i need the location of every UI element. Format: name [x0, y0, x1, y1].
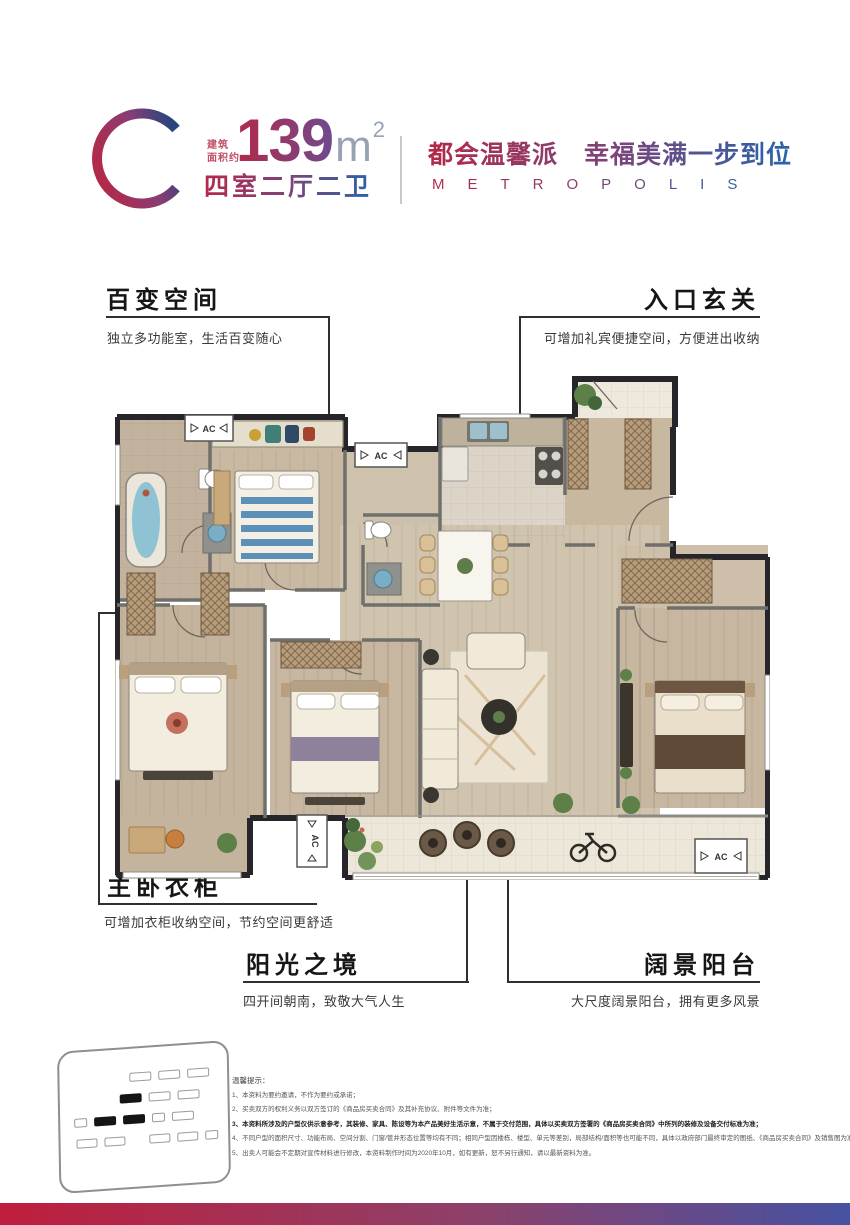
- site-plan-row: [120, 1088, 218, 1104]
- sink-1: [208, 524, 226, 542]
- window: [115, 445, 120, 505]
- nightstand: [119, 665, 128, 679]
- ac-label: AC: [715, 852, 728, 862]
- site-building: [158, 1069, 180, 1080]
- pillow: [279, 475, 313, 489]
- dining-chair: [420, 557, 435, 573]
- closet-item: [285, 425, 299, 443]
- area-value: 139: [236, 106, 333, 175]
- burner: [539, 470, 548, 479]
- pillow: [239, 475, 273, 489]
- master-wardrobe: [201, 573, 229, 635]
- headboard: [129, 663, 227, 675]
- callout-title-foyer: 入口玄关: [520, 280, 760, 315]
- dining-chair: [493, 535, 508, 551]
- pillow: [705, 695, 743, 710]
- nightstand: [645, 683, 654, 697]
- entry-door-opening: [669, 495, 677, 541]
- duvet-flower-center: [173, 719, 181, 727]
- ac-unit-3: AC: [297, 815, 327, 867]
- side-table: [423, 649, 439, 665]
- ac-unit-1: AC: [185, 415, 233, 441]
- ac-label: AC: [310, 835, 320, 848]
- callout-line: [519, 316, 760, 318]
- header-divider: [400, 136, 402, 204]
- burner: [539, 452, 548, 461]
- disclaimer: 温馨提示： 1、本资料为要约邀请，不作为要约或承诺； 2、买卖双方的权利义务以双…: [232, 1074, 832, 1162]
- sink-2: [374, 570, 392, 588]
- callout-line: [243, 981, 469, 983]
- master-wardrobe: [127, 573, 155, 635]
- site-building: [76, 1138, 97, 1148]
- site-building: [149, 1133, 170, 1143]
- ac-label: AC: [203, 424, 216, 434]
- site-building: [74, 1118, 87, 1128]
- site-building: [206, 1130, 219, 1140]
- plant: [217, 833, 237, 853]
- bed-throw: [291, 737, 379, 761]
- callout-subtitle-foyer: 可增加礼宾便捷空间，方便进出收纳: [500, 328, 760, 347]
- site-plan-row: [129, 1067, 217, 1082]
- armchair: [467, 633, 525, 669]
- bath-decor: [143, 490, 150, 497]
- callout-subtitle-balcony: 大尺度阔景阳台，拥有更多风景: [500, 991, 760, 1010]
- disclaimer-line: 3、本资料所涉及的户型仅供示意参考，其装修、家具、陈设等为本产品美好生活示意，不…: [232, 1118, 832, 1133]
- pillow: [181, 677, 221, 693]
- dining-chair: [493, 557, 508, 573]
- desk-chair: [166, 830, 184, 848]
- bed-bench: [305, 797, 365, 805]
- entry-plant: [588, 396, 602, 410]
- desk: [129, 827, 165, 853]
- site-plan: [57, 1040, 231, 1194]
- toilet-2: [371, 522, 391, 538]
- plant: [620, 767, 632, 779]
- ac-label: AC: [375, 451, 388, 461]
- ac-unit-2: AC: [355, 443, 407, 467]
- floor-plan: AC AC AC AC: [115, 375, 770, 880]
- closet-item: [265, 425, 281, 443]
- bed-bench: [143, 771, 213, 780]
- site-building-highlighted: [120, 1093, 142, 1104]
- area-unit: m: [335, 122, 372, 172]
- nightstand: [746, 683, 755, 697]
- site-plan-row: [76, 1130, 218, 1149]
- disclaimer-line: 5、出卖人可能会不定期对宣传材料进行修改，本资料制作时间为2020年10月，如有…: [232, 1147, 832, 1162]
- burner: [552, 452, 561, 461]
- bottom-gradient-bar: [0, 1203, 850, 1225]
- closet-item: [249, 429, 261, 441]
- callout-line: [507, 981, 760, 983]
- nightstand: [380, 683, 389, 697]
- pillow: [341, 694, 379, 709]
- site-building: [177, 1089, 199, 1100]
- headboard: [655, 681, 745, 693]
- dining-chair: [420, 579, 435, 595]
- unit-c-logo: [90, 100, 194, 218]
- site-plan-row: [74, 1109, 218, 1128]
- balcony-plant: [346, 818, 360, 832]
- callout-line: [98, 903, 317, 905]
- wardrobe-bedroom-right: [622, 559, 712, 603]
- site-plan-rows: [69, 1067, 218, 1149]
- table-centerpiece: [457, 558, 473, 574]
- dining-set: [420, 531, 508, 601]
- site-building: [187, 1067, 209, 1078]
- pillow: [297, 694, 335, 709]
- site-building: [172, 1111, 194, 1122]
- area-exponent: 2: [373, 117, 385, 143]
- disclaimer-title: 温馨提示：: [232, 1074, 832, 1089]
- pillow: [661, 695, 699, 710]
- callout-subtitle-flex-space: 独立多功能室，生活百变随心: [107, 328, 283, 347]
- window: [123, 872, 241, 878]
- tv-console: [620, 683, 633, 767]
- fridge: [442, 447, 468, 481]
- callout-subtitle-sunlight: 四开间朝南，致敬大气人生: [243, 991, 405, 1010]
- plant: [620, 669, 632, 681]
- plant: [622, 796, 640, 814]
- slogan-en: METROPOLIS: [432, 176, 760, 193]
- closet-item: [303, 427, 315, 441]
- unit-letter-shape: [97, 114, 176, 204]
- floor-plant: [553, 793, 573, 813]
- nightstand: [281, 683, 290, 697]
- site-building: [129, 1071, 151, 1082]
- site-building: [177, 1131, 198, 1141]
- master-bedroom-furniture: [119, 573, 237, 780]
- balcony-plant: [344, 830, 366, 852]
- area-figure: 139 m 2: [236, 106, 385, 175]
- ac-unit-4: AC: [695, 839, 747, 873]
- site-building: [152, 1113, 165, 1123]
- nightstand: [228, 665, 237, 679]
- foyer-closet: [625, 419, 651, 489]
- disclaimer-line: 2、买卖双方的权利义务以双方签订的《商品房买卖合同》及其补充协议、附件等文件为准…: [232, 1103, 832, 1118]
- sink-basin: [470, 423, 487, 439]
- duvet-dark: [655, 735, 745, 769]
- callout-title-flex-space: 百变空间: [106, 280, 222, 315]
- desk: [214, 471, 230, 525]
- layout-spec: 四室二厅二卫: [204, 167, 372, 203]
- disclaimer-line: 4、不同户型的面积尺寸、功能布局、空间分割、门窗/管井形态位置等均有不同；相同户…: [232, 1132, 832, 1147]
- pillow: [135, 677, 175, 693]
- foyer-closet: [568, 419, 588, 489]
- burner: [552, 470, 561, 479]
- site-building-highlighted: [94, 1116, 116, 1127]
- disclaimer-line: 1、本资料为要约邀请，不作为要约或承诺；: [232, 1089, 832, 1104]
- site-building: [149, 1091, 171, 1102]
- side-table: [423, 787, 439, 803]
- wardrobe-bedroom-2: [281, 642, 361, 668]
- headboard: [291, 681, 379, 692]
- dining-chair: [420, 535, 435, 551]
- site-building-highlighted: [123, 1114, 145, 1125]
- dining-chair: [493, 579, 508, 595]
- callout-line: [98, 613, 100, 905]
- slogan-cn: 都会温馨派 幸福美满一步到位: [428, 135, 792, 171]
- coffee-table-plant: [493, 711, 505, 723]
- balcony-plant: [371, 841, 383, 853]
- window: [765, 675, 770, 770]
- balcony-plant: [358, 852, 376, 870]
- site-building: [105, 1136, 126, 1146]
- callout-title-sunlight: 阳光之境: [246, 945, 362, 980]
- callout-line: [106, 316, 330, 318]
- sink-basin: [490, 423, 507, 439]
- balcony-flower: [360, 828, 365, 833]
- callout-title-balcony: 阔景阳台: [520, 945, 760, 980]
- callout-subtitle-master-wardrobe: 可增加衣柜收纳空间，节约空间更舒适: [104, 912, 334, 931]
